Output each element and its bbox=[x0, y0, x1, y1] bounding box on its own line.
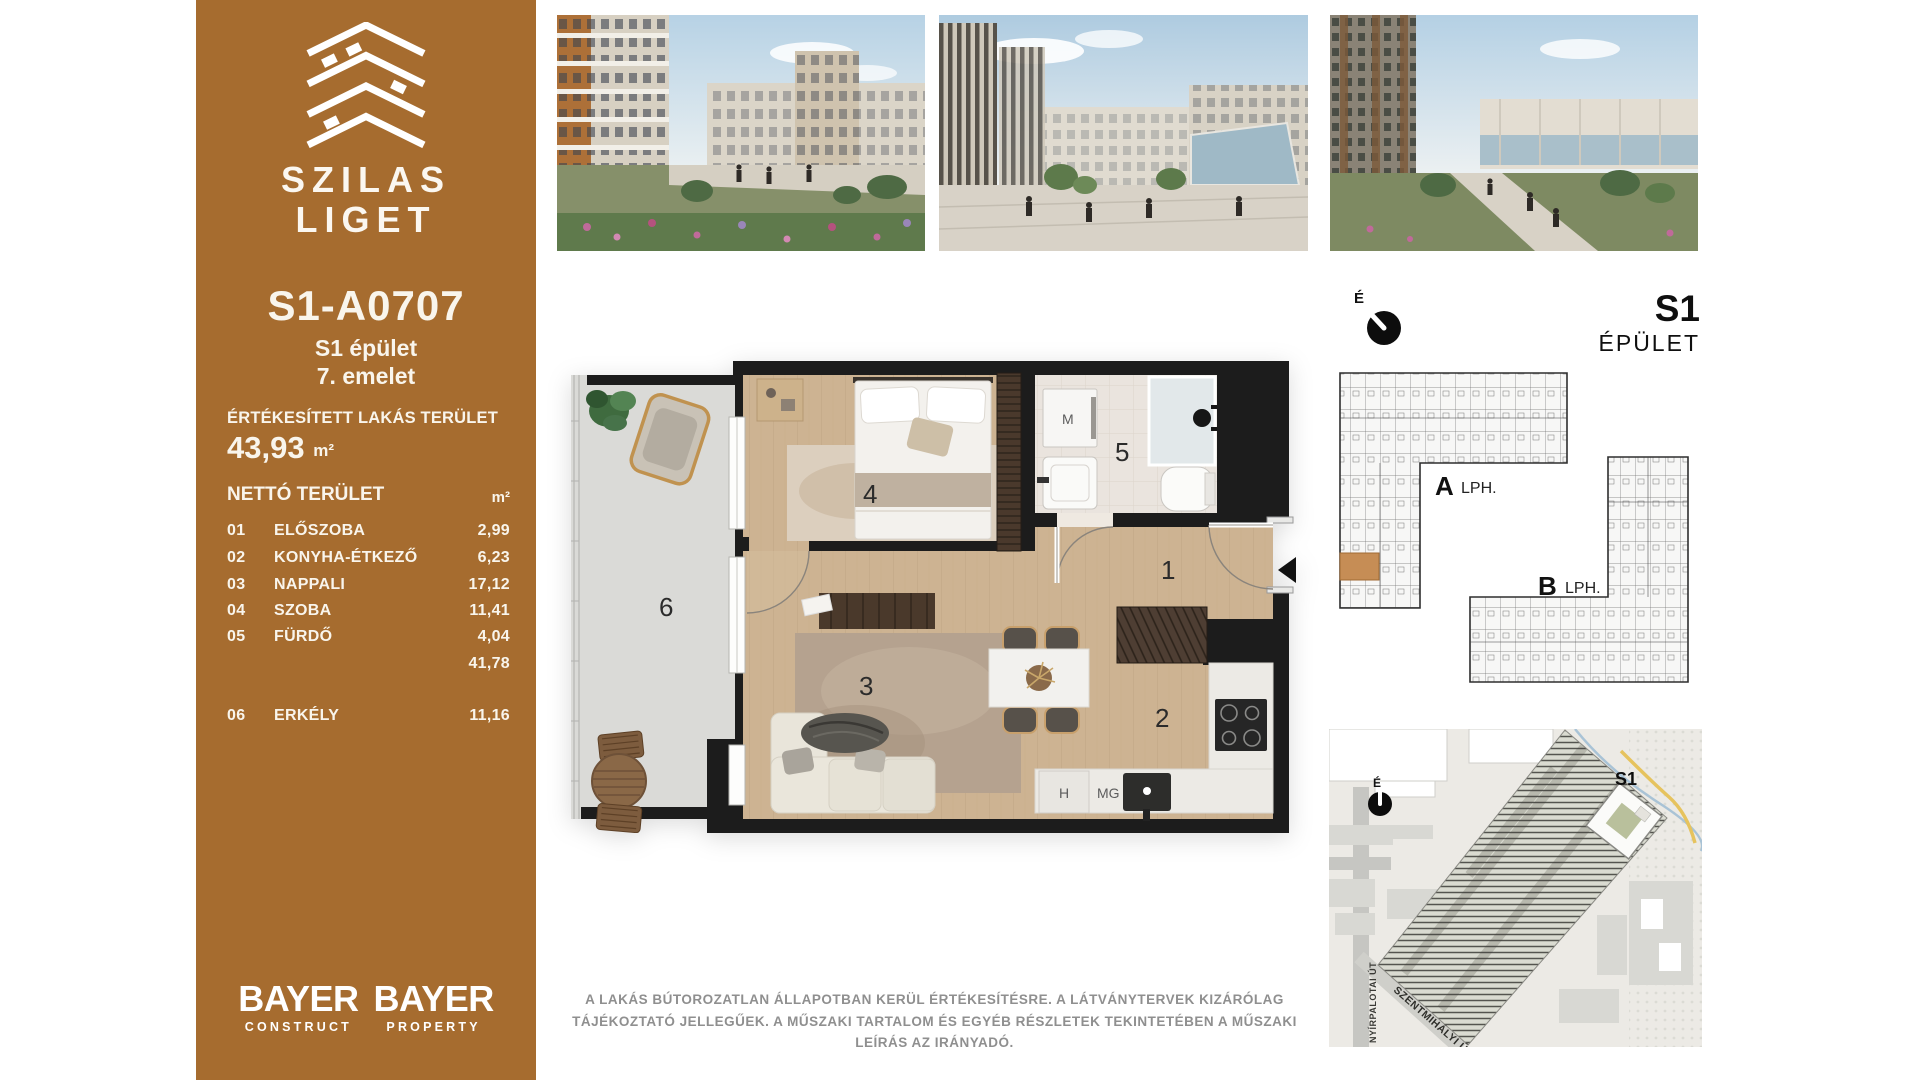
building-title: S1 ÉPÜLET bbox=[1548, 290, 1700, 357]
net-area-label: NETTÓ TERÜLET bbox=[227, 484, 384, 506]
fridge-label: H bbox=[1059, 785, 1069, 801]
balcony-row: 06 ERKÉLY 11,16 bbox=[227, 707, 510, 725]
table-row: 04 SZOBA 11,41 bbox=[227, 602, 510, 620]
room-number-hall: 1 bbox=[1161, 555, 1175, 585]
room-name: ERKÉLY bbox=[274, 707, 469, 725]
shower-head bbox=[1193, 409, 1211, 427]
highlighted-unit bbox=[1340, 553, 1379, 580]
floor-name: 7. emelet bbox=[196, 362, 536, 390]
entry-marker-icon bbox=[1278, 557, 1296, 583]
building-floor: S1 épület 7. emelet bbox=[196, 334, 536, 390]
site-map: S1 É NYÍRPALOTAI ÚT SZENTMIHÁLYI ÚT bbox=[1329, 729, 1702, 1047]
hall-wardrobe bbox=[1117, 607, 1207, 663]
north-compass: É bbox=[1352, 292, 1416, 356]
faucet bbox=[1037, 477, 1049, 483]
apartment-floorplan: 6 M 5 bbox=[557, 361, 1304, 833]
dishwasher-label: MG bbox=[1097, 785, 1120, 801]
developer-logos: BAYER CONSTRUCT BAYER PROPERTY bbox=[196, 981, 536, 1034]
room-name: FÜRDŐ bbox=[274, 628, 478, 646]
brand-line1: SZILAS bbox=[196, 160, 536, 200]
room-num: 05 bbox=[227, 628, 274, 646]
room-number-kitchen: 2 bbox=[1155, 703, 1169, 733]
table-row: 03 NAPPALI 17,12 bbox=[227, 576, 510, 594]
room-area: 11,41 bbox=[469, 602, 510, 620]
bedroom-area: 4 bbox=[757, 377, 997, 541]
building-name: S1 épület bbox=[196, 334, 536, 362]
room-num: 06 bbox=[227, 707, 274, 725]
room-name: NAPPALI bbox=[274, 576, 468, 594]
room-num: 02 bbox=[227, 549, 274, 567]
building-key-plan: A LPH. B LPH. bbox=[1335, 365, 1705, 695]
wing-b-sub: LPH. bbox=[1565, 580, 1601, 597]
net-subtotal: 41,78 bbox=[468, 655, 510, 673]
room-area: 11,16 bbox=[469, 707, 510, 725]
room-area: 2,99 bbox=[478, 522, 510, 540]
bayer-construct-logo: BAYER CONSTRUCT bbox=[238, 981, 358, 1034]
wing-a-label: A bbox=[1435, 471, 1454, 501]
tv-console bbox=[819, 593, 935, 629]
render-photo-2 bbox=[939, 15, 1308, 251]
washer-door bbox=[1091, 397, 1096, 439]
render-photo-1 bbox=[557, 15, 925, 251]
sidebar: SZILAS LIGET S1-A0707 S1 épület 7. emele… bbox=[196, 0, 536, 1080]
bathroom-area: M 5 bbox=[1035, 375, 1219, 513]
room-num: 04 bbox=[227, 602, 274, 620]
room-name: KONYHA-ÉTKEZŐ bbox=[274, 549, 478, 567]
render-photo-3 bbox=[1330, 15, 1698, 251]
brand-name: SZILAS LIGET bbox=[196, 160, 536, 239]
table-row: 02 KONYHA-ÉTKEZŐ 6,23 bbox=[227, 549, 510, 567]
floorplan-datasheet-page: SZILAS LIGET S1-A0707 S1 épület 7. emele… bbox=[0, 0, 1920, 1080]
wardrobe bbox=[997, 373, 1021, 551]
building-word: ÉPÜLET bbox=[1548, 330, 1700, 357]
subtotal-row: 41,78 bbox=[227, 655, 510, 673]
wing-b-outline bbox=[1470, 457, 1688, 682]
spacer bbox=[227, 655, 274, 673]
room-num: 03 bbox=[227, 576, 274, 594]
room-number-bedroom: 4 bbox=[863, 479, 877, 509]
table-row: 01 ELŐSZOBA 2,99 bbox=[227, 522, 510, 540]
logo-brand: BAYER bbox=[238, 981, 358, 1017]
sold-area-unit: m² bbox=[313, 441, 334, 460]
balcony-table bbox=[592, 731, 646, 833]
building-code: S1 bbox=[1548, 290, 1700, 327]
balcony-windows bbox=[729, 417, 745, 805]
nightstand bbox=[757, 379, 803, 421]
room-name: SZOBA bbox=[274, 602, 469, 620]
table-row: 05 FÜRDŐ 4,04 bbox=[227, 628, 510, 646]
map-north-label: É bbox=[1373, 775, 1381, 790]
street-name-vertical: NYÍRPALOTAI ÚT bbox=[1367, 962, 1378, 1043]
room-name: ELŐSZOBA bbox=[274, 522, 478, 540]
room-area: 4,04 bbox=[478, 628, 510, 646]
spacer bbox=[274, 655, 468, 673]
room-area: 17,12 bbox=[468, 576, 510, 594]
logo-sub: PROPERTY bbox=[374, 1020, 494, 1034]
szilas-liget-logo bbox=[305, 22, 427, 150]
sold-area-number: 43,93 bbox=[227, 430, 305, 465]
net-area-unit: m² bbox=[492, 489, 510, 506]
sold-area-value: 43,93 m² bbox=[227, 430, 334, 466]
brand-line2: LIGET bbox=[196, 200, 536, 240]
north-label: É bbox=[1354, 290, 1364, 307]
logo-sub: CONSTRUCT bbox=[238, 1020, 358, 1034]
bayer-property-logo: BAYER PROPERTY bbox=[374, 981, 494, 1034]
room-area: 6,23 bbox=[478, 549, 510, 567]
wing-a-sub: LPH. bbox=[1461, 480, 1497, 497]
room-number-bathroom: 5 bbox=[1115, 437, 1129, 467]
room-number-balcony: 6 bbox=[659, 592, 673, 622]
unit-id: S1-A0707 bbox=[196, 282, 536, 330]
room-number-living: 3 bbox=[859, 671, 873, 701]
s1-map-label: S1 bbox=[1615, 769, 1637, 789]
room-num: 01 bbox=[227, 522, 274, 540]
washing-machine-label: M bbox=[1062, 411, 1074, 427]
wing-b-label: B bbox=[1538, 571, 1557, 601]
logo-brand: BAYER bbox=[374, 981, 494, 1017]
north-compass-icon bbox=[1362, 306, 1406, 350]
disclaimer-text: A LAKÁS BÚTOROZATLAN ÁLLAPOTBAN KERÜL ÉR… bbox=[557, 989, 1312, 1054]
sold-area-label: ÉRTÉKESÍTETT LAKÁS TERÜLET bbox=[227, 409, 510, 428]
net-area-header: NETTÓ TERÜLET m² bbox=[227, 484, 510, 506]
